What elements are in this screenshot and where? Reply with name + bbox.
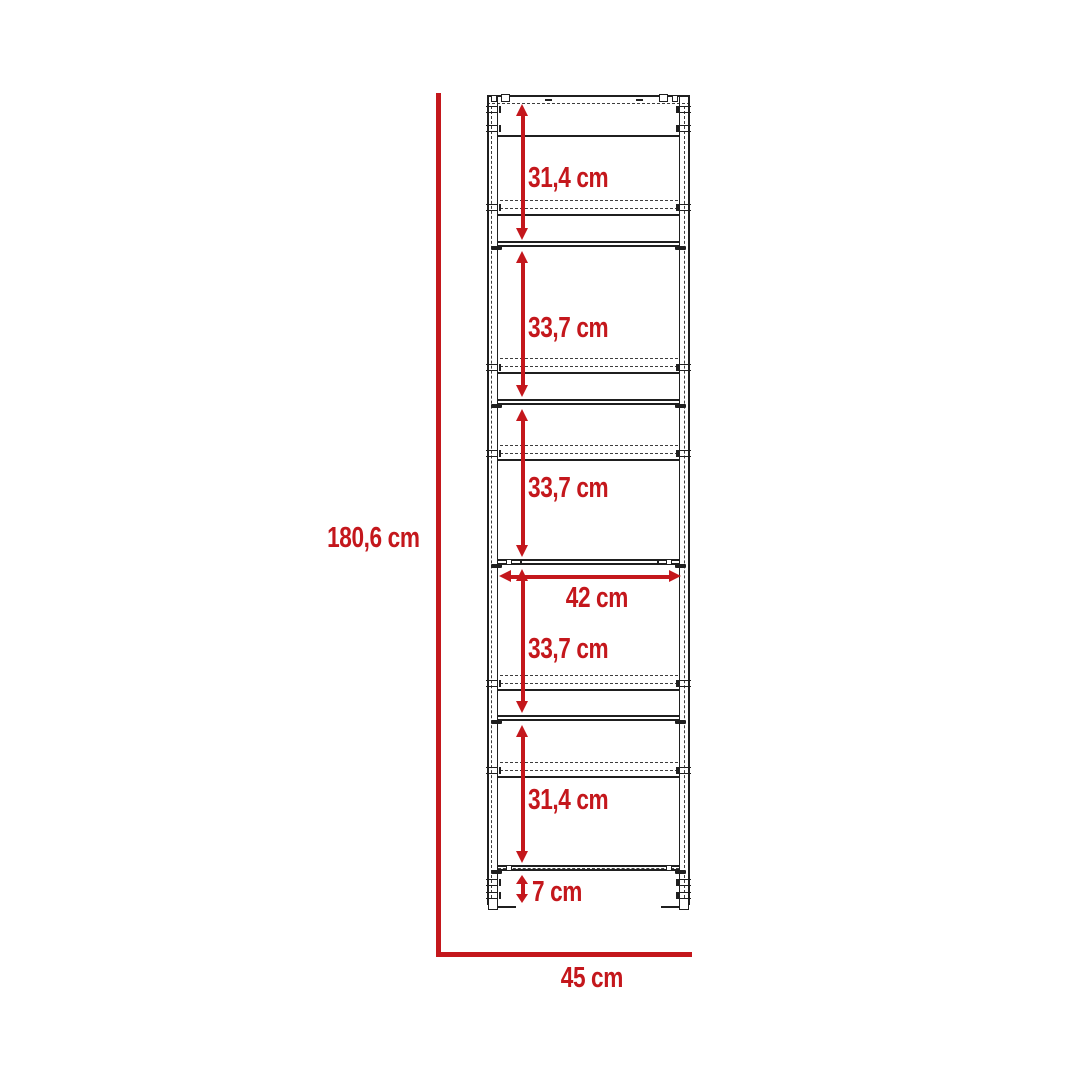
shelf-clip xyxy=(491,246,502,250)
hardware-mark xyxy=(486,450,497,457)
section-height-label-3: 33,7 cm xyxy=(528,473,631,505)
left-panel-hidden-edge xyxy=(491,106,492,898)
overall-height-dimension-line xyxy=(436,93,441,957)
cam-fitting xyxy=(501,94,510,102)
hardware-mark xyxy=(486,680,497,687)
hardware-tick xyxy=(520,561,522,565)
hardware-mark xyxy=(486,892,497,899)
shelf-clip xyxy=(675,720,686,724)
shelf-clip xyxy=(491,404,502,408)
shelf-clip xyxy=(675,564,686,568)
cabinet-left-side-panel xyxy=(487,95,498,905)
cam-fitting xyxy=(666,865,672,871)
shelf-3-fixed xyxy=(498,559,679,565)
shelf-clip xyxy=(491,564,502,568)
hardware-mark xyxy=(486,767,497,774)
hardware-mark xyxy=(486,204,497,211)
shelf-clip xyxy=(491,870,502,874)
cam-fitting xyxy=(506,865,512,871)
hardware-mark xyxy=(486,125,497,132)
section-height-label-4: 33,7 cm xyxy=(528,634,631,666)
cam-fitting xyxy=(506,559,512,565)
cam-fitting xyxy=(491,95,497,102)
cam-fitting xyxy=(672,95,678,102)
right-panel-hidden-edge xyxy=(684,106,685,898)
dimension-arrow-base xyxy=(516,875,529,903)
shelf-clip xyxy=(675,404,686,408)
shelf-clip xyxy=(675,246,686,250)
overall-width-dimension-line xyxy=(436,952,692,957)
section-height-label-1: 31,4 cm xyxy=(528,163,631,195)
hardware-mark xyxy=(680,450,691,457)
hardware-mark xyxy=(680,680,691,687)
overall-width-label: 45 cm xyxy=(512,963,672,995)
shelf-2 xyxy=(498,399,679,405)
overall-height-label: 180,6 cm xyxy=(295,523,420,555)
section-height-label-2: 33,7 cm xyxy=(528,313,631,345)
hardware-mark xyxy=(680,767,691,774)
hardware-mark xyxy=(486,364,497,371)
section-height-label-5: 31,4 cm xyxy=(528,785,631,817)
bottom-shelf-hidden-line xyxy=(498,868,679,869)
cam-fitting xyxy=(666,559,672,565)
shelf-4 xyxy=(498,715,679,721)
hardware-tick xyxy=(657,561,659,565)
base-height-label: 7 cm xyxy=(532,877,596,909)
cabinet-foot xyxy=(679,903,689,910)
hardware-tick xyxy=(636,99,643,101)
furniture-dimension-diagram: 180,6 cm 45 cm xyxy=(0,0,1090,1090)
cam-fitting xyxy=(659,94,668,102)
shelf-clip xyxy=(675,870,686,874)
hardware-mark xyxy=(486,106,497,113)
shelf-clip xyxy=(491,720,502,724)
cabinet-foot xyxy=(488,903,498,910)
hardware-mark xyxy=(680,879,691,886)
interior-width-label: 42 cm xyxy=(512,583,682,615)
hardware-mark xyxy=(680,125,691,132)
hardware-mark xyxy=(680,106,691,113)
hardware-mark xyxy=(680,892,691,899)
hardware-mark xyxy=(486,879,497,886)
shelf-1 xyxy=(498,241,679,247)
cabinet-foot-base xyxy=(498,906,516,908)
hardware-mark xyxy=(680,204,691,211)
cabinet-foot-base xyxy=(661,906,679,908)
hardware-tick xyxy=(545,99,552,101)
hardware-mark xyxy=(680,364,691,371)
